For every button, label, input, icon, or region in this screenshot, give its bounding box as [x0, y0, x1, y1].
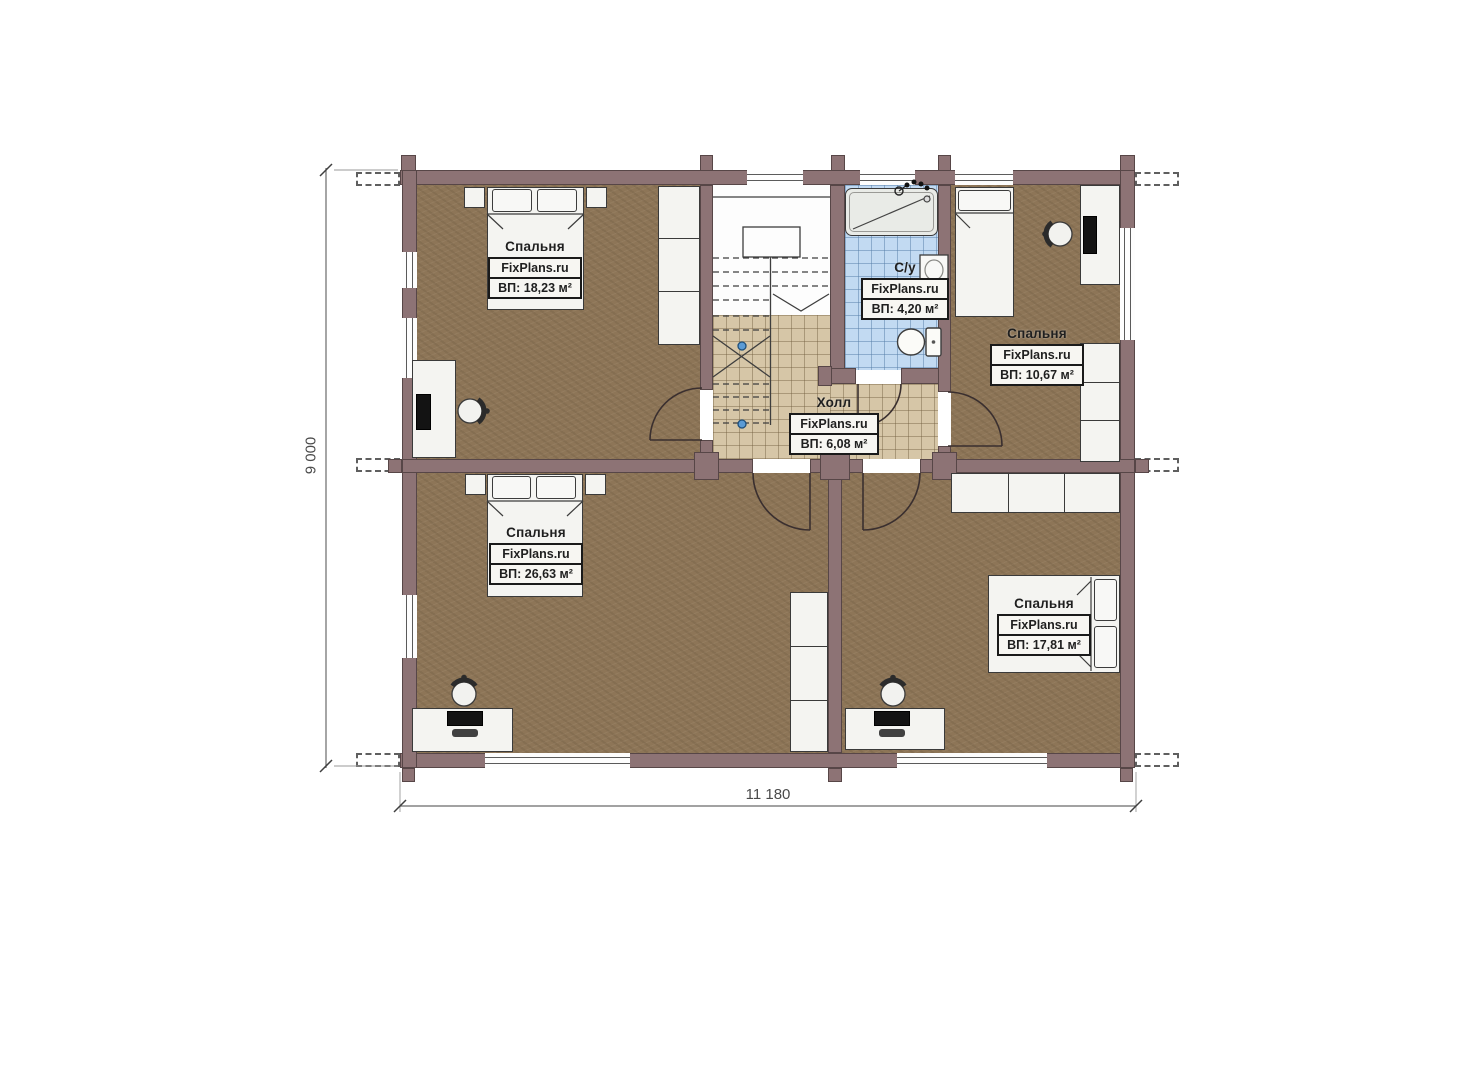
wall-bath-bottom: [830, 368, 856, 384]
room-area: ВП: 26,63 м²: [491, 563, 581, 583]
log-end-dashed: [356, 172, 400, 186]
shelf-divider: [1080, 382, 1120, 383]
shelf-divider: [790, 700, 828, 701]
pillow: [1094, 626, 1117, 668]
watermark: FixPlans.ru: [863, 280, 947, 298]
room-name: Спальня: [997, 596, 1091, 611]
wall-bottom-rooms-divider: [828, 473, 842, 753]
watermark: FixPlans.ru: [490, 259, 580, 277]
window: [1120, 228, 1135, 340]
wall-bath-left: [830, 185, 845, 370]
room-name: Холл: [789, 395, 879, 410]
window: [897, 753, 1047, 768]
wall-junction: [694, 452, 719, 480]
room-name: Спальня: [488, 239, 582, 254]
room-name: С/у: [861, 260, 949, 275]
nightstand: [585, 474, 606, 495]
wall-junction: [820, 452, 850, 480]
room-label-bedroom-bottom-right: Спальня FixPlans.ru ВП: 17,81 м²: [997, 596, 1091, 656]
room-label-bedroom-bottom-left: Спальня FixPlans.ru ВП: 26,63 м²: [489, 525, 583, 585]
room-label-box: FixPlans.ru ВП: 18,23 м²: [488, 257, 582, 299]
log-stub-left: [388, 459, 402, 473]
shelf-divider: [790, 646, 828, 647]
log-stub-bottom: [402, 768, 415, 782]
pillow: [537, 189, 577, 212]
log-stub-top: [1120, 155, 1135, 171]
log-stub-bottom: [1120, 768, 1133, 782]
window: [485, 753, 630, 768]
room-label-box: FixPlans.ru ВП: 4,20 м²: [861, 278, 949, 320]
log-end-dashed: [1135, 172, 1179, 186]
log-end-dashed: [356, 753, 400, 767]
room-area: ВП: 10,67 м²: [992, 364, 1082, 384]
room-name: Спальня: [990, 326, 1084, 341]
keyboard: [452, 729, 478, 737]
window: [402, 595, 417, 658]
room-area: ВП: 6,08 м²: [791, 433, 877, 453]
window: [747, 170, 803, 185]
log-stub-bottom: [828, 768, 842, 782]
watermark: FixPlans.ru: [791, 415, 877, 433]
wall-stairs-left: [700, 185, 713, 390]
watermark: FixPlans.ru: [491, 545, 581, 563]
window: [955, 170, 1013, 185]
wall-junction: [818, 366, 832, 386]
nightstand: [586, 187, 607, 208]
window: [402, 252, 417, 288]
log-stub-top: [401, 155, 416, 171]
room-label-box: FixPlans.ru ВП: 10,67 м²: [990, 344, 1084, 386]
pillow: [958, 190, 1011, 211]
log-stub-top: [938, 155, 951, 171]
monitor: [447, 711, 483, 726]
pillow: [1094, 579, 1117, 621]
room-label-box: FixPlans.ru ВП: 6,08 м²: [789, 413, 879, 455]
room-area: ВП: 17,81 м²: [999, 634, 1089, 654]
wardrobe: [1080, 343, 1120, 462]
watermark: FixPlans.ru: [999, 616, 1089, 634]
shower-tray: [845, 188, 938, 236]
wardrobe: [951, 473, 1120, 513]
floor-plan: Спальня FixPlans.ru ВП: 18,23 м² Спальня…: [0, 0, 1473, 1080]
pillow: [492, 476, 531, 499]
window: [860, 170, 915, 185]
wardrobe: [658, 186, 700, 345]
pillow: [492, 189, 532, 212]
room-label-box: FixPlans.ru ВП: 26,63 м²: [489, 543, 583, 585]
floor-stairwell: [713, 185, 830, 315]
room-label-hall: Холл FixPlans.ru ВП: 6,08 м²: [789, 395, 879, 455]
nightstand: [464, 187, 485, 208]
room-area: ВП: 18,23 м²: [490, 277, 580, 297]
shower-tray-inner: [849, 192, 934, 232]
room-name: Спальня: [489, 525, 583, 540]
shelf-divider: [658, 238, 700, 239]
room-label-bedroom-top-right: Спальня FixPlans.ru ВП: 10,67 м²: [990, 326, 1084, 386]
shelf-divider: [1008, 473, 1009, 513]
monitor: [416, 394, 431, 430]
log-stub-top: [831, 155, 845, 171]
room-label-bedroom-top-left: Спальня FixPlans.ru ВП: 18,23 м²: [488, 239, 582, 299]
room-label-bathroom: С/у FixPlans.ru ВП: 4,20 м²: [861, 260, 949, 320]
dimension-height-label: 9 000: [303, 421, 320, 491]
dimension-width-label: 11 180: [738, 786, 798, 803]
pillow: [536, 476, 576, 499]
room-label-box: FixPlans.ru ВП: 17,81 м²: [997, 614, 1091, 656]
monitor: [874, 711, 910, 726]
log-end-dashed: [1135, 753, 1179, 767]
monitor: [1083, 216, 1097, 254]
shelf-divider: [1064, 473, 1065, 513]
shelf-unit: [790, 592, 828, 752]
shelf-divider: [658, 291, 700, 292]
watermark: FixPlans.ru: [992, 346, 1082, 364]
log-stub-top: [700, 155, 713, 171]
room-area: ВП: 4,20 м²: [863, 298, 947, 318]
log-stub-right: [1135, 459, 1149, 473]
shelf-divider: [1080, 420, 1120, 421]
keyboard: [879, 729, 905, 737]
nightstand: [465, 474, 486, 495]
